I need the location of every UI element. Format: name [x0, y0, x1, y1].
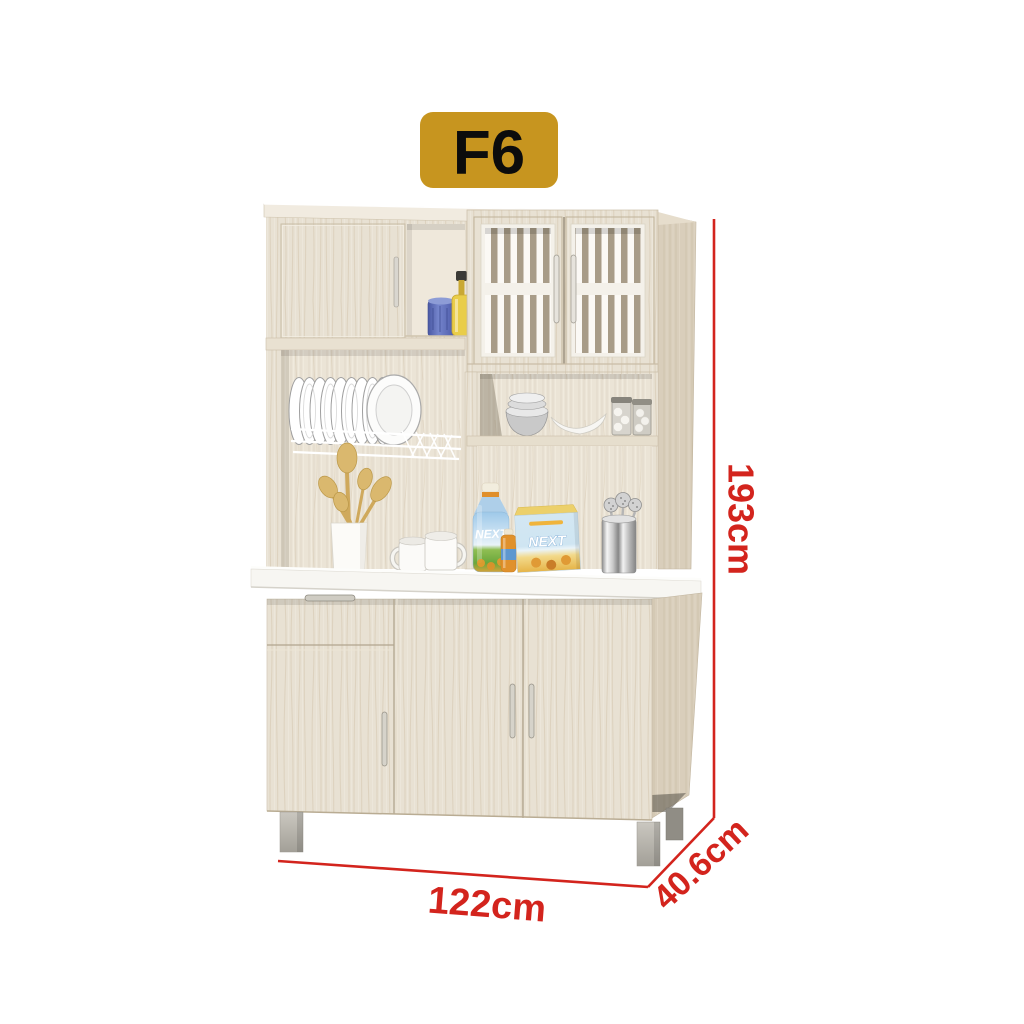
hutch-side-panel	[658, 214, 696, 569]
cutlery-canister	[602, 493, 642, 574]
base-front-panel	[267, 599, 652, 820]
glass-door-right-handle	[571, 255, 576, 323]
model-badge: F6	[420, 112, 558, 188]
mid-board	[266, 338, 465, 350]
shelf-board	[467, 436, 658, 446]
small-bottle	[501, 529, 516, 572]
middle-door-handle	[510, 684, 515, 738]
glass-door-right	[566, 217, 654, 364]
upper-left-door	[281, 224, 405, 338]
glass-door-cabinet	[467, 210, 658, 372]
glass-door-left-handle	[554, 255, 559, 323]
badge-label: F6	[453, 119, 525, 188]
cereal-box: NEXT	[514, 504, 580, 572]
back-right-leg	[666, 808, 683, 840]
left-door-handle	[382, 712, 387, 766]
upper-open-cubby	[405, 224, 471, 336]
product-illustration: NEXT NEXT	[0, 0, 1024, 1024]
furniture-dimension-image: NEXT NEXT	[0, 0, 1024, 1024]
metal-bowls	[506, 393, 548, 436]
glass-door-left	[474, 217, 562, 364]
box-brand-text: NEXT	[528, 532, 568, 550]
height-label: 193cm	[721, 463, 762, 575]
upper-left-door-handle	[394, 257, 399, 307]
drawer-handle	[305, 595, 355, 601]
blue-jar	[428, 298, 454, 337]
right-door-handle	[529, 684, 534, 738]
